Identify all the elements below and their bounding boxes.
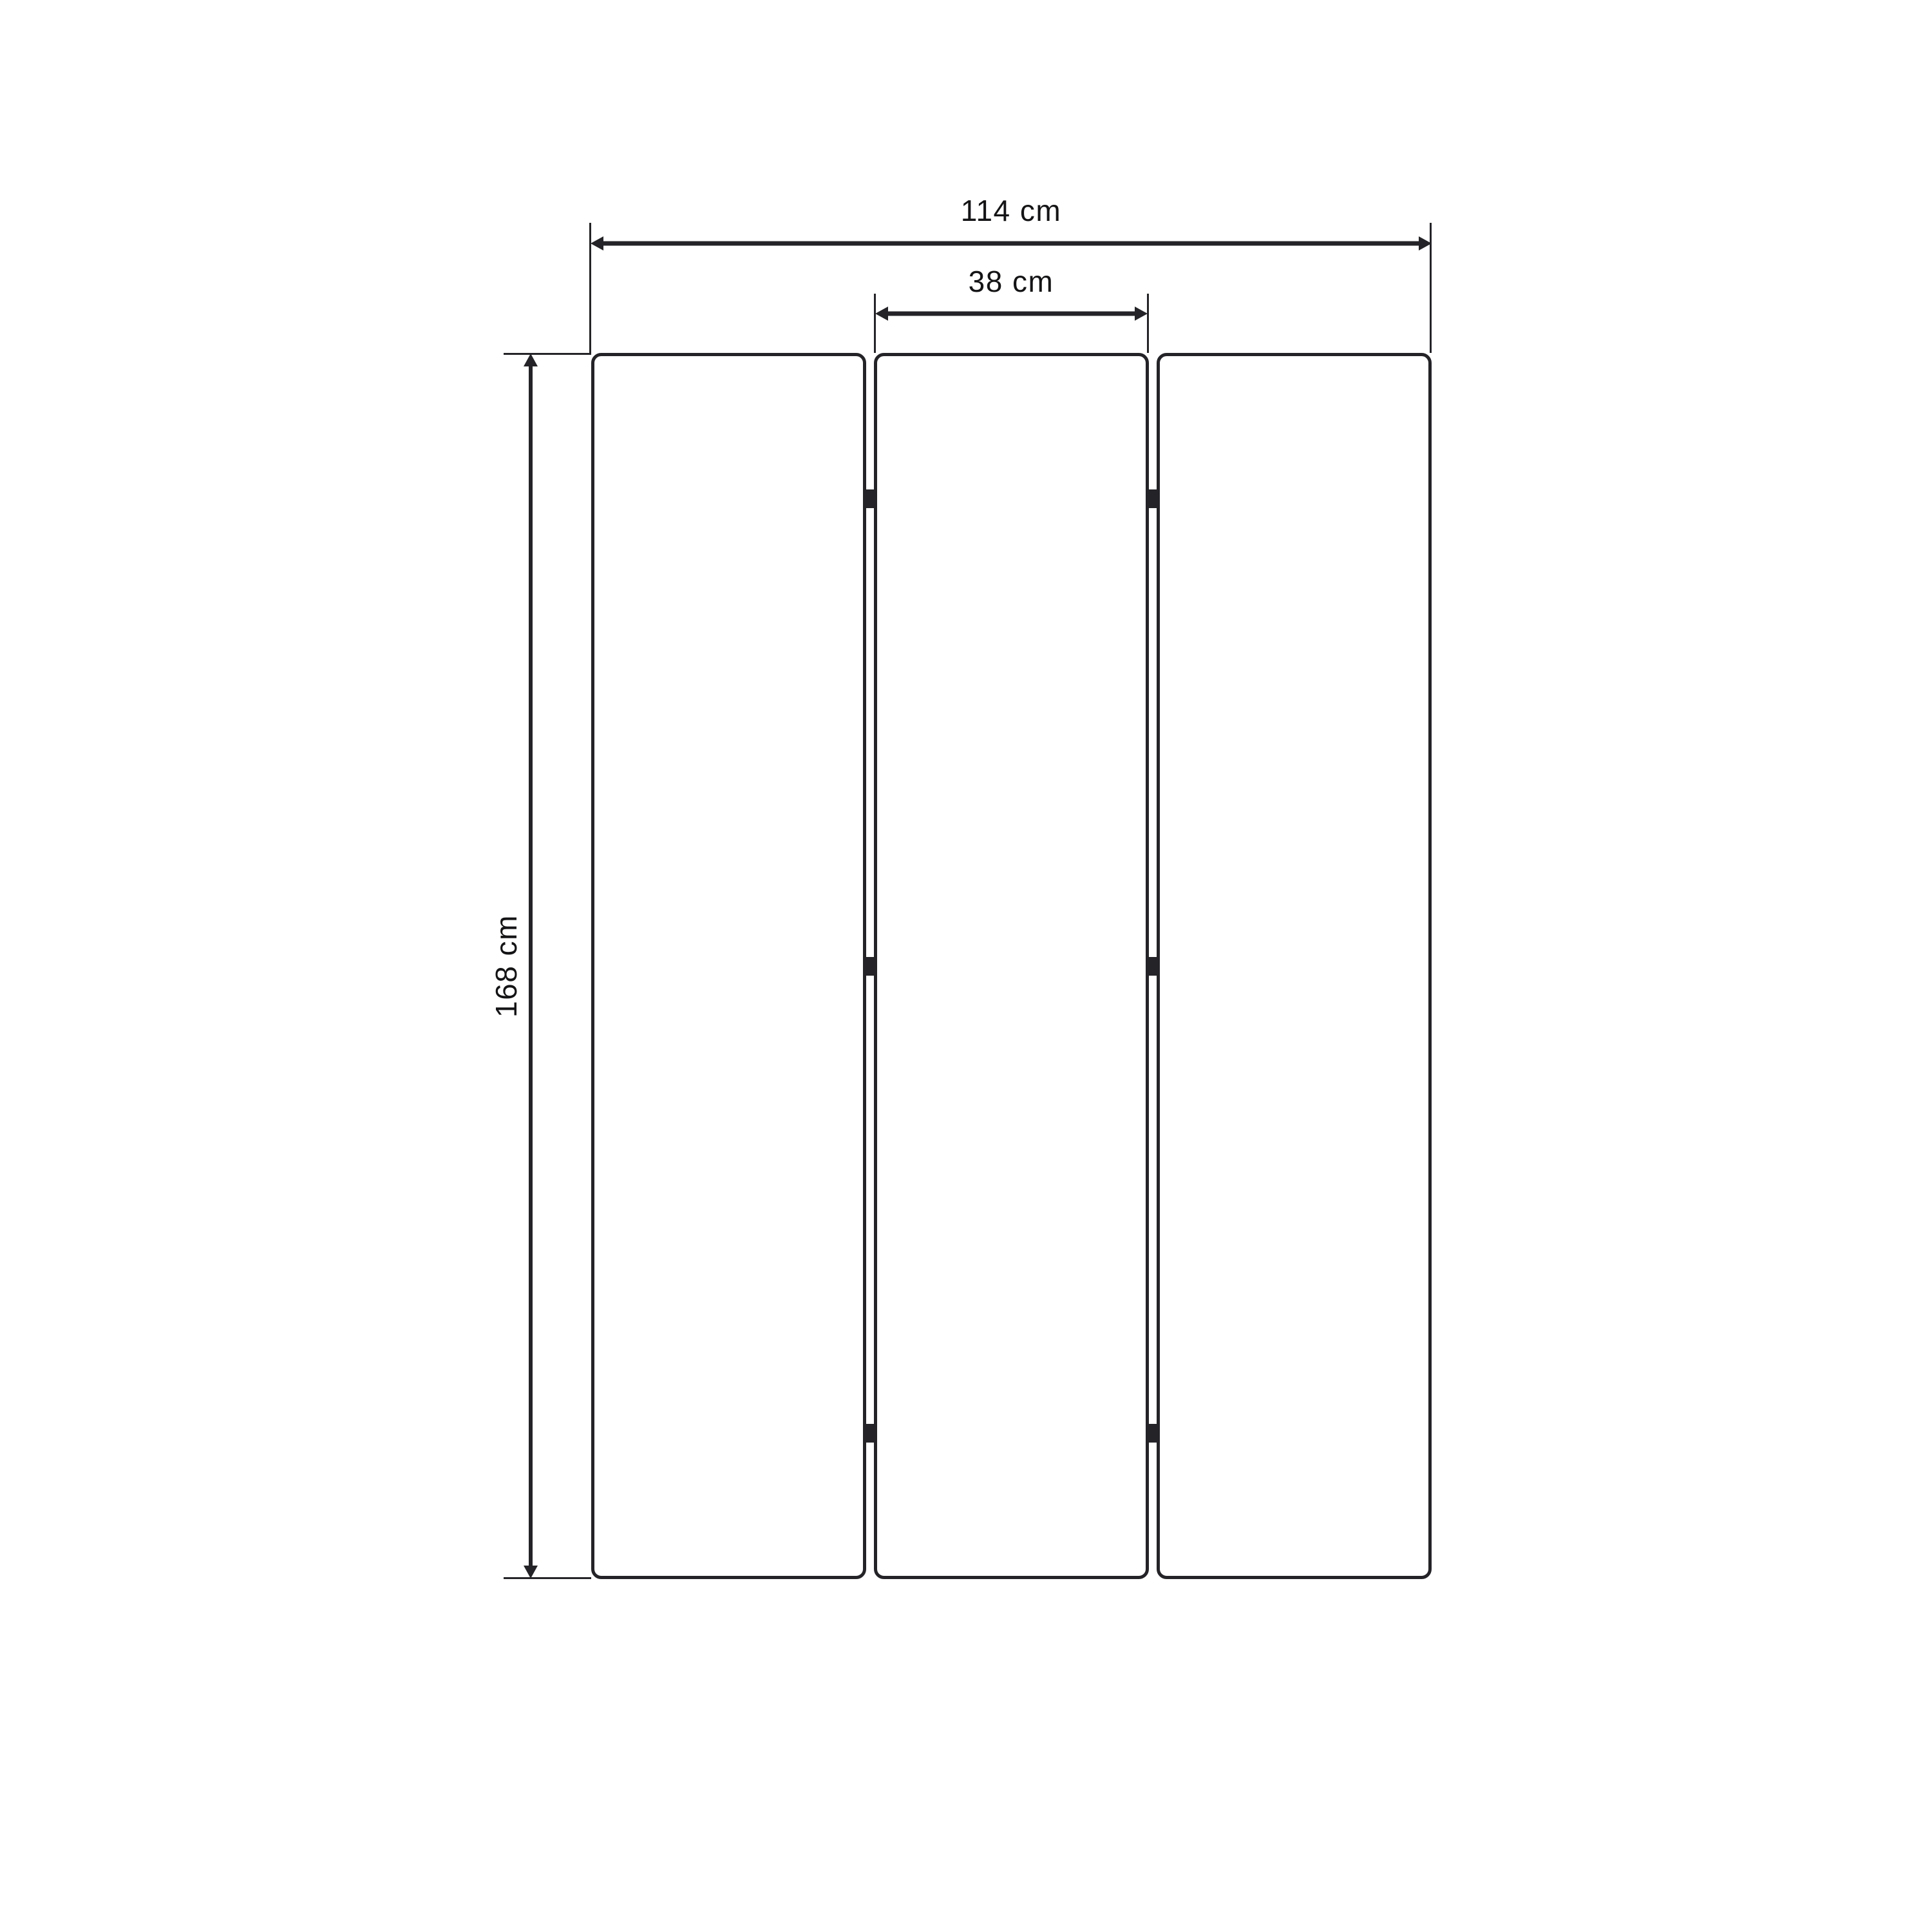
- hinge-icon: [866, 489, 875, 508]
- hinge-icon: [1149, 1424, 1157, 1443]
- panel-width-label: 38 cm: [882, 263, 1140, 299]
- dimension-panel-width: [875, 294, 1148, 353]
- dimension-diagram: 114 cm 38 cm 168 cm: [0, 0, 1932, 1932]
- hinge-icon: [1149, 957, 1157, 976]
- hinge-icon: [1149, 489, 1157, 508]
- height-label: 168 cm: [488, 837, 524, 1095]
- arrow-left-icon: [591, 236, 603, 251]
- total-width-label: 114 cm: [882, 193, 1140, 229]
- arrow-down-icon: [524, 1566, 538, 1578]
- panel-middle: [876, 355, 1148, 1578]
- panel-left: [593, 355, 865, 1578]
- panel-group: [593, 355, 1430, 1578]
- arrow-right-icon: [1135, 307, 1148, 321]
- arrow-up-icon: [524, 354, 538, 366]
- hinge-icon: [866, 957, 875, 976]
- arrow-left-icon: [875, 307, 888, 321]
- hinge-icon: [866, 1424, 875, 1443]
- panel-right: [1159, 355, 1430, 1578]
